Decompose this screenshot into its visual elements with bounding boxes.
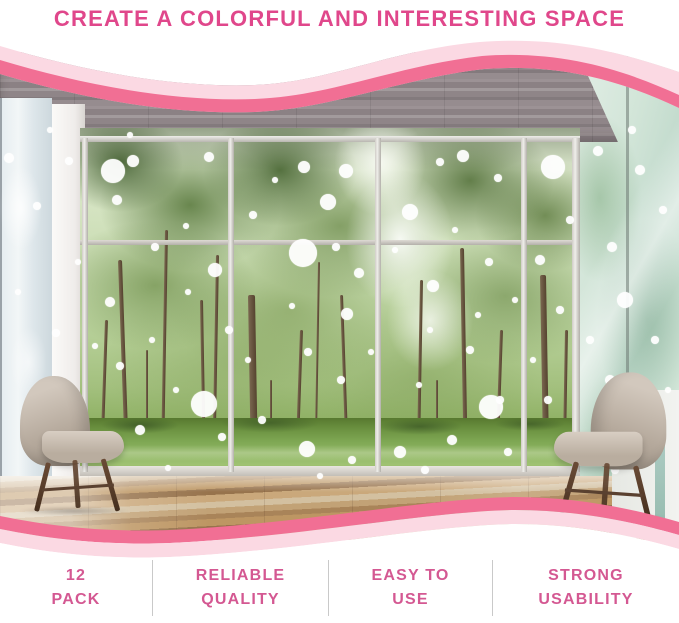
polka-dot-decal — [659, 206, 667, 214]
polka-dot-decal — [427, 280, 439, 292]
polka-dot-decal — [475, 312, 481, 318]
feature-line: STRONG — [493, 564, 679, 588]
polka-dot-decal — [225, 326, 233, 334]
right-armchair-leg — [633, 465, 651, 519]
feature-ease: EASY TO USE — [329, 564, 492, 612]
polka-dot-decal — [173, 387, 179, 393]
polka-dot-decal — [15, 289, 21, 295]
polka-dot-decal — [183, 223, 189, 229]
polka-dot-decal — [421, 466, 429, 474]
polka-dot-decal — [112, 195, 122, 205]
window-bottom-rail — [80, 466, 580, 476]
polka-dot-decal — [512, 297, 518, 303]
polka-dot-decal — [258, 416, 266, 424]
polka-dot-decal — [101, 159, 125, 183]
right-armchair-leg — [601, 463, 610, 515]
polka-dot-decal — [566, 216, 574, 224]
polka-dot-decal — [304, 348, 312, 356]
polka-dot-decal — [354, 268, 364, 278]
window-mullion-4 — [521, 138, 527, 472]
polka-dot-decal — [452, 227, 458, 233]
polka-dot-decal — [392, 247, 398, 253]
polka-dot-decal — [65, 157, 73, 165]
polka-dot-decal — [485, 258, 493, 266]
polka-dot-decal — [436, 158, 444, 166]
polka-dot-decal — [208, 263, 222, 277]
polka-dot-decal — [191, 391, 217, 417]
left-armchair — [12, 376, 136, 518]
polka-dot-decal — [466, 346, 474, 354]
polka-dot-decal — [556, 306, 564, 314]
polka-dot-decal — [298, 161, 310, 173]
polka-dot-decal — [289, 239, 317, 267]
polka-dot-decal — [494, 174, 502, 182]
polka-dot-decal — [651, 336, 659, 344]
polka-dot-decal — [447, 435, 457, 445]
polka-dot-decal — [289, 303, 295, 309]
polka-dot-decal — [52, 329, 60, 337]
polka-dot-decal — [394, 446, 406, 458]
polka-dot-decal — [416, 382, 422, 388]
polka-dot-decal — [151, 243, 159, 251]
product-marketing-image: CREATE A COLORFUL AND INTERESTING SPACE … — [0, 0, 679, 623]
polka-dot-decal — [185, 289, 191, 295]
polka-dot-decal — [332, 243, 340, 251]
window-mullion-3 — [375, 138, 381, 472]
polka-dot-decal — [317, 473, 323, 479]
polka-dot-decal — [33, 202, 41, 210]
right-armchair-seat — [554, 432, 643, 467]
polka-dot-decal — [341, 308, 353, 320]
polka-dot-decal — [617, 292, 633, 308]
polka-dot-decal — [593, 146, 603, 156]
polka-dot-decal — [149, 337, 155, 343]
headline-title: CREATE A COLORFUL AND INTERESTING SPACE — [0, 6, 679, 32]
polka-dot-decal — [339, 164, 353, 178]
polka-dot-decal — [635, 165, 645, 175]
feature-quality: RELIABLE QUALITY — [153, 564, 328, 612]
polka-dot-decal — [586, 336, 594, 344]
polka-dot-decal — [135, 425, 145, 435]
polka-dot-decal — [457, 150, 469, 162]
polka-dot-decal — [127, 155, 139, 167]
polka-dot-decal — [337, 376, 345, 384]
polka-dot-decal — [530, 357, 536, 363]
feature-usability: STRONG USABILITY — [493, 564, 679, 612]
room-photo — [0, 0, 679, 623]
left-armchair-shadow — [18, 506, 130, 516]
polka-dot-decal — [541, 155, 565, 179]
polka-dot-decal — [504, 448, 512, 456]
polka-dot-decal — [427, 327, 433, 333]
feature-line: USABILITY — [493, 588, 679, 612]
feature-line: USE — [329, 588, 492, 612]
right-armchair-shadow — [548, 513, 669, 524]
feature-line: RELIABLE — [153, 564, 328, 588]
feature-pack: 12 PACK — [0, 564, 152, 612]
window-mullion-2 — [228, 138, 234, 472]
feature-line: 12 — [0, 564, 152, 588]
polka-dot-decal — [4, 153, 14, 163]
polka-dot-decal — [479, 395, 503, 419]
polka-dot-decal — [165, 465, 171, 471]
polka-dot-decal — [127, 132, 133, 138]
polka-dot-decal — [368, 349, 374, 355]
polka-dot-decal — [402, 204, 418, 220]
polka-dot-decal — [272, 177, 278, 183]
feature-line: PACK — [0, 588, 152, 612]
feature-line: QUALITY — [153, 588, 328, 612]
window-top-rail — [80, 136, 580, 142]
polka-dot-decal — [92, 343, 98, 349]
feature-captions-row: 12 PACK RELIABLE QUALITY EASY TO USE STR… — [0, 556, 679, 620]
polka-dot-decal — [75, 259, 81, 265]
polka-dot-decal — [320, 194, 336, 210]
polka-dot-decal — [607, 242, 617, 252]
polka-dot-decal — [348, 456, 356, 464]
polka-dot-decal — [218, 433, 226, 441]
left-armchair-seat — [42, 431, 124, 463]
polka-dot-decal — [245, 357, 251, 363]
polka-dot-decal — [116, 362, 124, 370]
polka-dot-decal — [105, 297, 115, 307]
right-armchair — [541, 372, 675, 525]
feature-line: EASY TO — [329, 564, 492, 588]
polka-dot-decal — [299, 441, 315, 457]
left-armchair-leg — [72, 460, 80, 508]
polka-dot-decal — [204, 152, 214, 162]
polka-dot-decal — [628, 126, 636, 134]
polka-dot-decal — [47, 127, 53, 133]
polka-dot-decal — [249, 211, 257, 219]
polka-dot-decal — [535, 255, 545, 265]
